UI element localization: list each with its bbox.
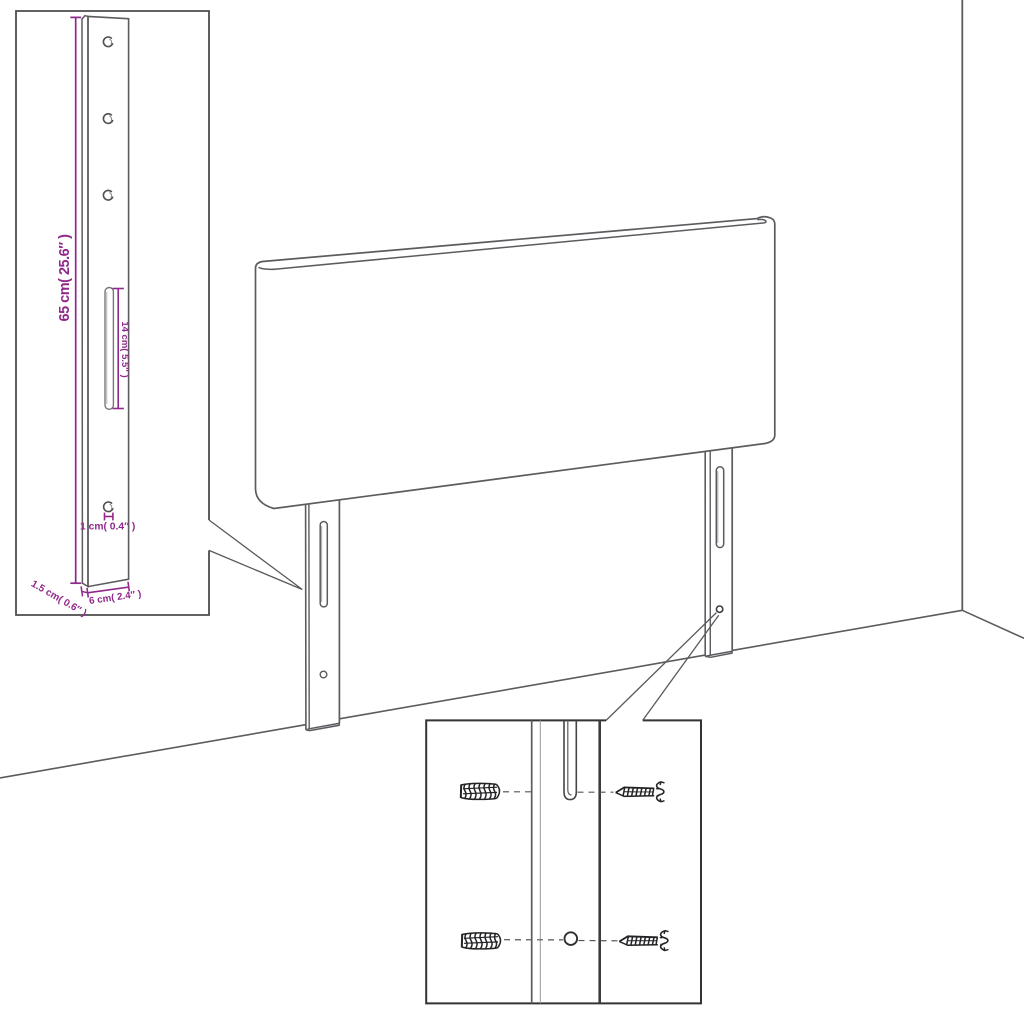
svg-text:65 cm( 25.6″ ): 65 cm( 25.6″ ) <box>57 234 73 322</box>
svg-text:14 cm( 5.5″ ): 14 cm( 5.5″ ) <box>119 321 130 377</box>
svg-text:1 cm( 0.4″ ): 1 cm( 0.4″ ) <box>80 522 135 533</box>
svg-text:1.5 cm( 0.6″ ): 1.5 cm( 0.6″ ) <box>29 579 88 620</box>
